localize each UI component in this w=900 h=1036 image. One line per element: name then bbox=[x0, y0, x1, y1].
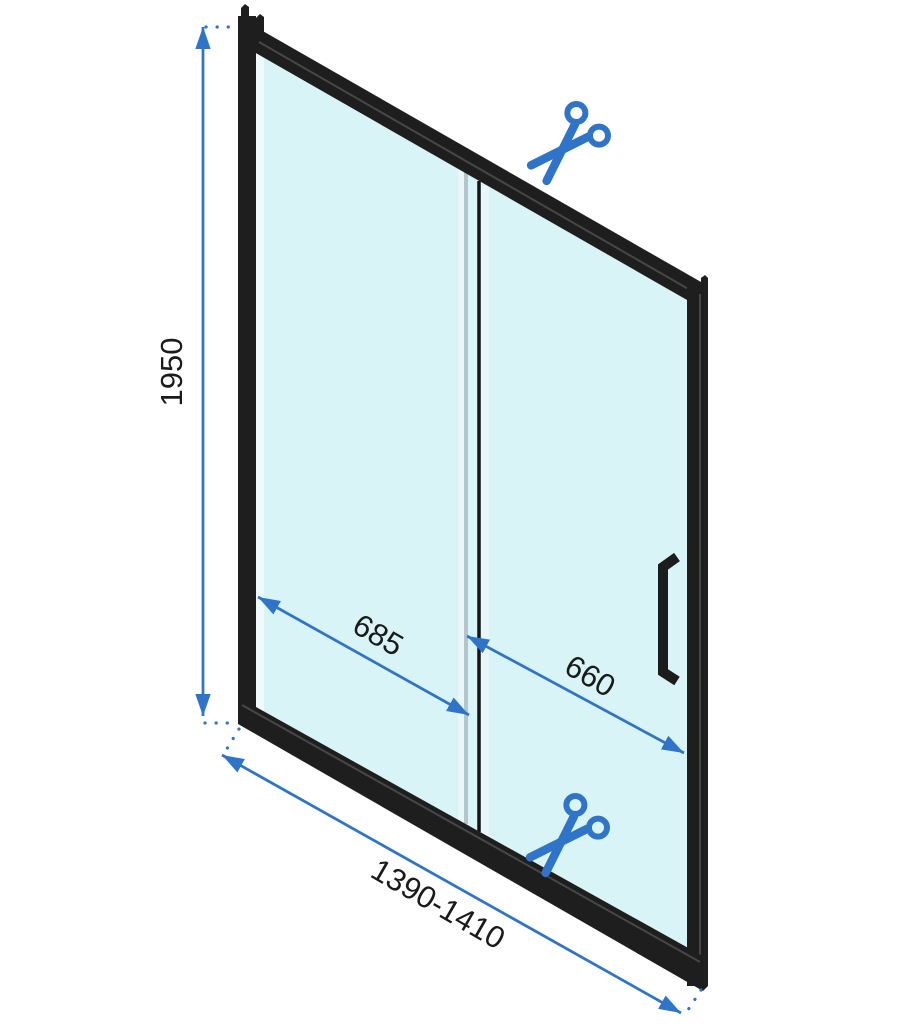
scissors-icon-top bbox=[521, 100, 612, 191]
extension-line-bottom-right bbox=[686, 990, 701, 1013]
frame-right-rail bbox=[687, 286, 708, 986]
glass-edge-highlight-divider bbox=[481, 182, 489, 837]
frame-top-fin-1 bbox=[241, 4, 249, 16]
diagram-stage: 1950 685 660 1390-1410 bbox=[0, 0, 900, 1036]
glass-panel bbox=[253, 50, 687, 948]
dimension-label-height: 1950 bbox=[154, 338, 189, 407]
glass-edge-highlight-mid bbox=[458, 168, 464, 822]
frame-right-fin bbox=[701, 275, 708, 286]
frame-left-rail bbox=[238, 16, 256, 723]
shower-door-diagram: 1950 685 660 1390-1410 bbox=[0, 0, 900, 1036]
extension-line-bottom-left bbox=[225, 729, 239, 752]
dimension-height: 1950 bbox=[154, 27, 236, 723]
glass-panels bbox=[253, 50, 687, 948]
